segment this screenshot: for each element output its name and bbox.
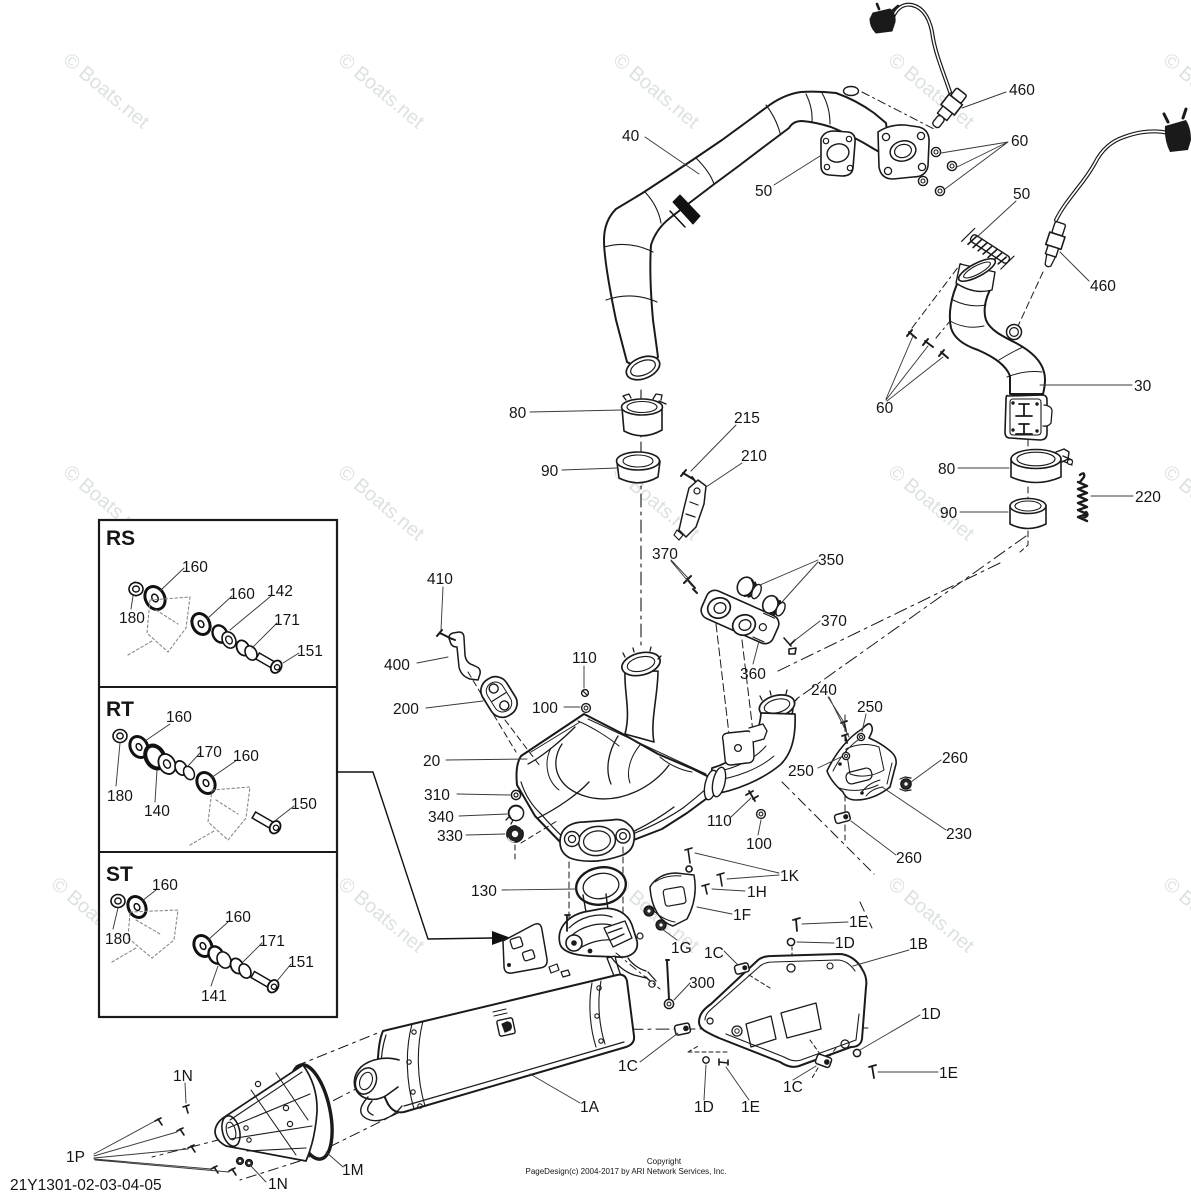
svg-text:160: 160 [225,909,251,926]
svg-text:90: 90 [541,463,559,480]
svg-text:160: 160 [152,877,178,894]
svg-text:1B: 1B [909,936,928,953]
svg-text:1M: 1M [342,1162,364,1179]
svg-text:400: 400 [384,657,410,674]
svg-text:60: 60 [876,400,894,417]
svg-text:151: 151 [297,643,323,660]
svg-text:1N: 1N [268,1176,288,1193]
svg-text:150: 150 [291,796,317,813]
svg-text:110: 110 [572,650,597,667]
svg-text:100: 100 [532,700,558,717]
svg-text:151: 151 [288,954,314,971]
svg-text:410: 410 [427,571,453,588]
svg-text:141: 141 [201,988,227,1005]
svg-text:260: 260 [942,750,968,767]
svg-text:21Y1301-02-03-04-05: 21Y1301-02-03-04-05 [10,1177,162,1194]
svg-text:160: 160 [233,748,259,765]
svg-text:160: 160 [229,586,255,603]
svg-text:1E: 1E [741,1099,760,1116]
svg-text:1N: 1N [173,1068,193,1085]
svg-text:260: 260 [896,850,922,867]
svg-text:250: 250 [857,699,883,716]
svg-text:1D: 1D [835,935,855,952]
svg-text:180: 180 [119,610,145,627]
svg-text:1D: 1D [921,1006,941,1023]
svg-text:130: 130 [471,883,497,900]
svg-text:1G: 1G [671,940,692,957]
svg-text:230: 230 [946,826,972,843]
svg-text:171: 171 [259,933,285,950]
svg-text:370: 370 [652,546,678,563]
svg-text:240: 240 [811,682,837,699]
svg-text:140: 140 [144,803,170,820]
svg-text:80: 80 [938,461,956,478]
svg-text:142: 142 [267,583,293,600]
svg-text:215: 215 [734,410,760,427]
svg-text:1C: 1C [618,1058,638,1075]
svg-text:60: 60 [1011,133,1029,150]
svg-text:160: 160 [182,559,208,576]
svg-text:80: 80 [509,405,527,422]
svg-text:460: 460 [1090,278,1116,295]
svg-text:1H: 1H [747,884,767,901]
svg-text:40: 40 [622,128,640,145]
svg-text:200: 200 [393,701,419,718]
svg-text:210: 210 [741,448,767,465]
svg-text:20: 20 [423,753,441,770]
svg-text:1E: 1E [849,914,868,931]
svg-text:180: 180 [107,788,133,805]
svg-text:Copyright: Copyright [647,1157,682,1166]
svg-text:460: 460 [1009,82,1035,99]
svg-text:1C: 1C [783,1079,803,1096]
svg-text:90: 90 [940,505,958,522]
svg-text:RS: RS [106,527,135,550]
svg-text:220: 220 [1135,489,1161,506]
svg-text:340: 340 [428,809,454,826]
svg-text:370: 370 [821,613,847,630]
svg-text:360: 360 [740,666,766,683]
svg-text:ST: ST [106,863,133,886]
svg-text:250: 250 [788,763,814,780]
svg-text:50: 50 [1013,186,1031,203]
svg-text:30: 30 [1134,378,1152,395]
svg-text:1F: 1F [733,907,751,924]
svg-text:1C: 1C [704,945,724,962]
svg-text:171: 171 [274,612,300,629]
svg-text:350: 350 [818,552,844,569]
svg-text:1A: 1A [580,1099,600,1116]
svg-text:1K: 1K [780,868,800,885]
svg-text:1P: 1P [66,1149,85,1166]
svg-text:1D: 1D [694,1099,714,1116]
svg-text:1E: 1E [939,1065,958,1082]
svg-text:170: 170 [196,744,222,761]
svg-text:310: 310 [424,787,450,804]
svg-text:330: 330 [437,828,463,845]
svg-text:110: 110 [707,813,732,830]
svg-text:300: 300 [689,975,715,992]
svg-text:180: 180 [105,931,131,948]
svg-text:RT: RT [106,698,134,721]
svg-text:PageDesign(c) 2004-2017 by ARI: PageDesign(c) 2004-2017 by ARI Network S… [526,1167,727,1176]
svg-text:160: 160 [166,709,192,726]
svg-text:50: 50 [755,183,773,200]
svg-text:100: 100 [746,836,772,853]
